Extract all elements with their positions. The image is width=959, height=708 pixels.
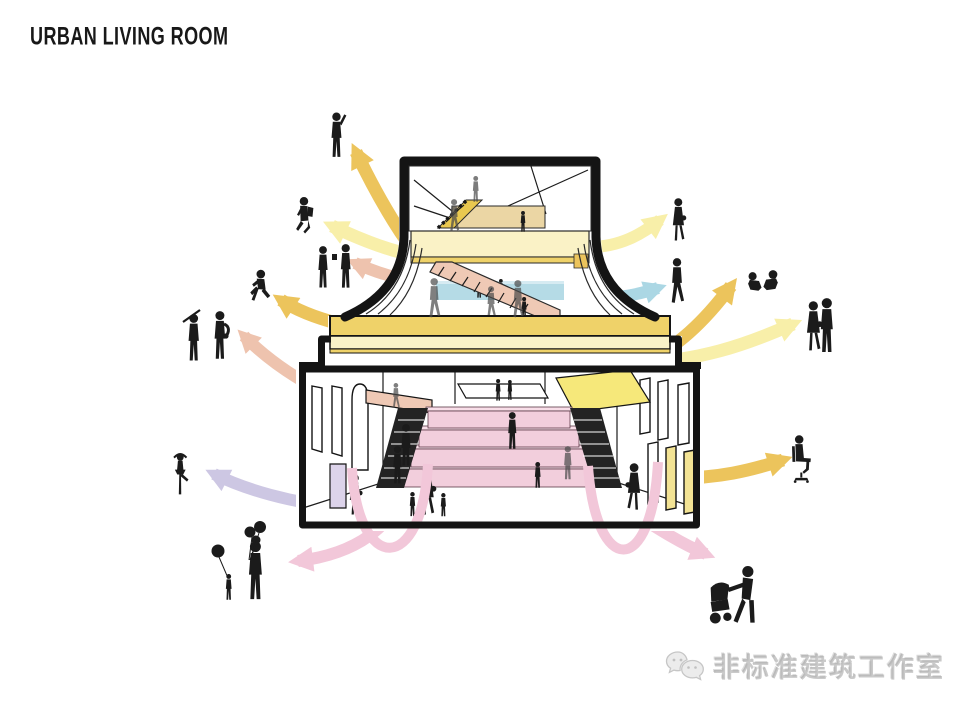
person-jumping-with-backpack bbox=[296, 197, 313, 234]
attic-level bbox=[409, 163, 591, 231]
woman-walking-with-bag bbox=[673, 198, 686, 240]
building-section bbox=[296, 156, 704, 550]
street-musicians-duo bbox=[183, 310, 229, 360]
man-walking bbox=[672, 258, 684, 303]
hall-desk bbox=[458, 384, 548, 398]
studio-watermark: 非标准建筑工作室 bbox=[665, 646, 945, 685]
children-playing bbox=[748, 270, 778, 291]
watermark-text: 非标准建筑工作室 bbox=[713, 646, 945, 685]
wechat-bubbles-icon bbox=[665, 650, 707, 682]
person-waving bbox=[332, 113, 347, 157]
urban-living-room-diagram bbox=[0, 0, 959, 708]
couple-talking bbox=[318, 244, 350, 287]
urban-living-room-page: URBAN LIVING ROOM bbox=[0, 0, 959, 708]
couple-standing bbox=[807, 298, 833, 352]
mother-and-child-with-balloons bbox=[212, 521, 267, 600]
person-sitting-on-chair bbox=[792, 435, 811, 483]
ballet-dancer bbox=[173, 453, 188, 494]
child-running bbox=[250, 270, 270, 301]
parent-pushing-stroller bbox=[710, 566, 755, 624]
hall-lavender-door bbox=[330, 464, 346, 508]
